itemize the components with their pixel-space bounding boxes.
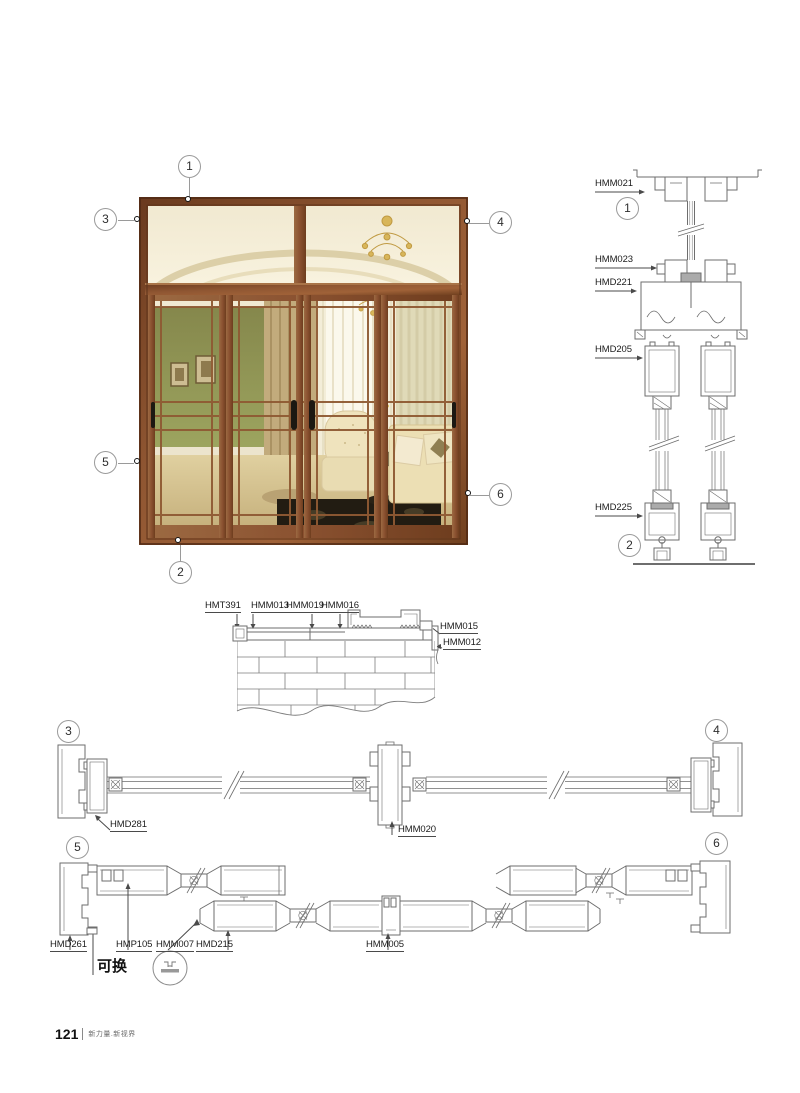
part-label: HMM023 (595, 254, 633, 265)
section-callout-6: 6 (705, 832, 728, 855)
part-label: HMM005 (366, 939, 404, 952)
part-label: HMD205 (595, 344, 632, 355)
photo-callout-6: 6 (489, 483, 512, 506)
alt-profile-icon (153, 951, 187, 985)
part-label: HMD215 (196, 939, 233, 952)
part-label: HMD281 (110, 819, 147, 832)
section-5-6-drawing (40, 835, 750, 990)
part-label: HMP105 (116, 939, 152, 952)
photo-callout-1: 1 (178, 155, 201, 178)
callout-dot-5 (134, 458, 140, 464)
part-label: HMD225 (595, 502, 632, 513)
page-number: 121 (55, 1026, 78, 1042)
catalog-page: 1 2 3 4 5 6 (0, 0, 800, 1093)
section-callout-3: 3 (57, 720, 80, 743)
section-callout-2: 2 (618, 534, 641, 557)
photo-callout-4: 4 (489, 211, 512, 234)
callout-leader-1 (189, 178, 190, 197)
callout-dot-2 (175, 537, 181, 543)
callout-dot-3 (134, 216, 140, 222)
part-label: HMM019 (286, 600, 324, 613)
callout-leader-5 (118, 463, 134, 464)
part-label: HMM012 (443, 637, 481, 650)
section-3-4: HMD281 HMM020 3 4 (55, 715, 755, 845)
replaceable-note: 可换 (97, 955, 127, 976)
door-photo (139, 197, 468, 545)
page-footer: 121 新力量.新视界 (55, 1026, 136, 1042)
photo-callout-3: 3 (94, 208, 117, 231)
vertical-section: HMM021 HMM023 HMD221 HMD205 HMD225 1 2 (575, 168, 790, 580)
footer-divider (82, 1028, 83, 1040)
callout-leader-3 (118, 220, 134, 221)
callout-leader-6 (470, 495, 489, 496)
part-label: HMM015 (440, 621, 478, 634)
part-label: HMM021 (595, 178, 633, 189)
callout-dot-4 (464, 218, 470, 224)
photo-callout-5: 5 (94, 451, 117, 474)
callout-dot-1 (185, 196, 191, 202)
part-label: HMT391 (205, 600, 241, 613)
panel-sections (633, 342, 755, 564)
vertical-section-drawing (575, 168, 790, 580)
part-label: HMM007 (156, 939, 194, 952)
part-label: HMM016 (321, 600, 359, 613)
section-callout-4: 4 (705, 719, 728, 742)
callout-dot-6 (465, 490, 471, 496)
part-label: HMD221 (595, 277, 632, 288)
section-callout-5: 5 (66, 836, 89, 859)
footer-slogan: 新力量.新视界 (88, 1029, 135, 1039)
callout-leader-2 (180, 545, 181, 561)
part-label: HMM013 (251, 600, 289, 613)
section-callout-1: 1 (616, 197, 639, 220)
section-5-6: HMD261 HMP105 HMM007 HMD215 HMM005 可换 5 … (40, 835, 750, 990)
brick-wall (237, 641, 435, 719)
photo-callout-2: 2 (169, 561, 192, 584)
door-photo-image (139, 197, 468, 545)
part-label: HMD261 (50, 939, 87, 952)
callout-leader-4 (469, 223, 489, 224)
